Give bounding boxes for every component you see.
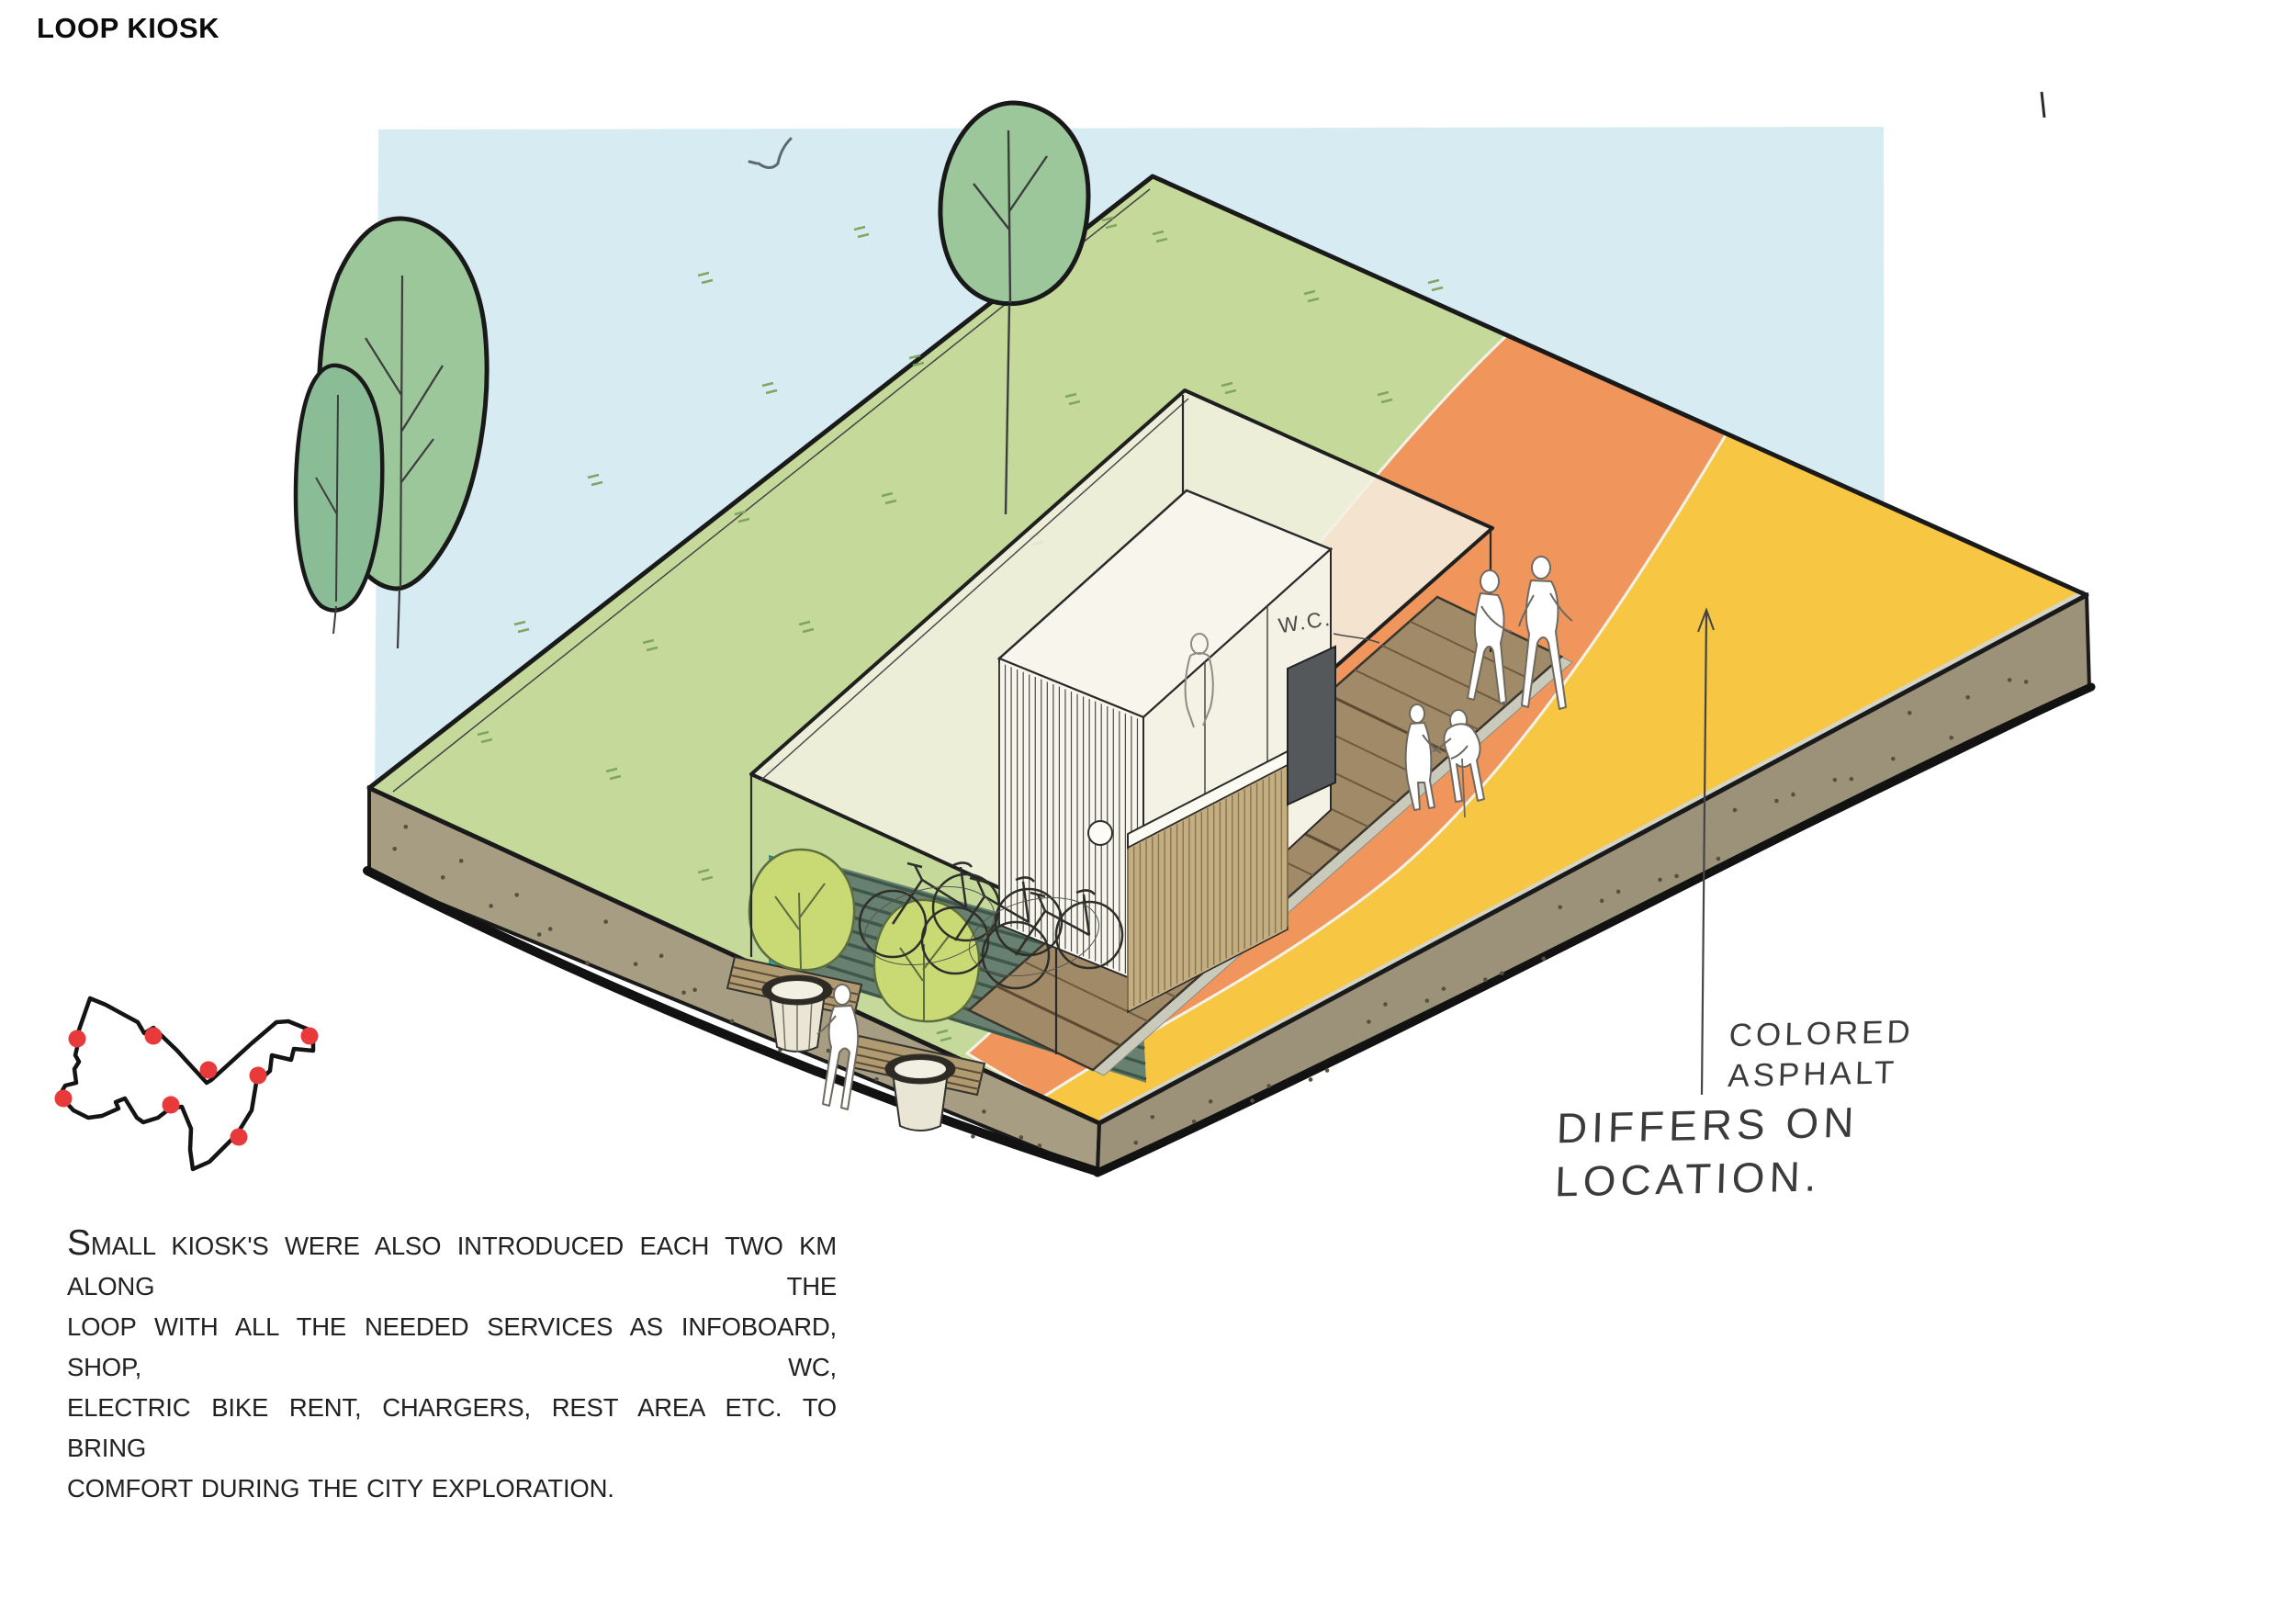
- note-line: LOCATION.: [1554, 1149, 1857, 1209]
- door-sign: [1088, 821, 1112, 845]
- paragraph-line: ELECTRIC BIKE RENT, CHARGERS, REST AREA …: [67, 1388, 837, 1469]
- paragraph-line: LOOP WITH ALL THE NEEDED SERVICES AS INF…: [67, 1307, 837, 1388]
- planter-tree-2: [874, 900, 979, 1021]
- kiosk-stop-dots: [55, 1028, 319, 1146]
- planter-soil: [771, 981, 823, 999]
- page-title: LOOP KIOSK: [37, 12, 219, 45]
- planter-soil: [895, 1060, 946, 1078]
- paragraph-line: COMFORT DURING THE CITY EXPLORATION.: [67, 1469, 837, 1509]
- tree-left-small: [296, 366, 382, 634]
- note-colored-asphalt: COLORED ASPHALT: [1728, 1012, 1915, 1097]
- description-paragraph: SMALL KIOSK'S WERE ALSO INTRODUCED EACH …: [67, 1223, 837, 1509]
- sketch-page: LOOP KIOSK W.C. COLORED ASPHALT DIFFERS …: [0, 0, 2296, 1621]
- stray-mark-icon: [2042, 92, 2044, 118]
- planter-tree-1: [749, 850, 854, 970]
- note-line: DIFFERS ON: [1556, 1096, 1859, 1155]
- note-differs-location: DIFFERS ON LOCATION.: [1554, 1096, 1859, 1209]
- paragraph-line: SMALL KIOSK'S WERE ALSO INTRODUCED EACH …: [67, 1223, 837, 1307]
- wc-dark-panel: [1288, 647, 1335, 805]
- loop-route-map: [55, 998, 319, 1169]
- note-line: COLORED: [1728, 1012, 1914, 1056]
- note-line: ASPHALT: [1728, 1053, 1913, 1097]
- loop-route-outline: [62, 998, 313, 1169]
